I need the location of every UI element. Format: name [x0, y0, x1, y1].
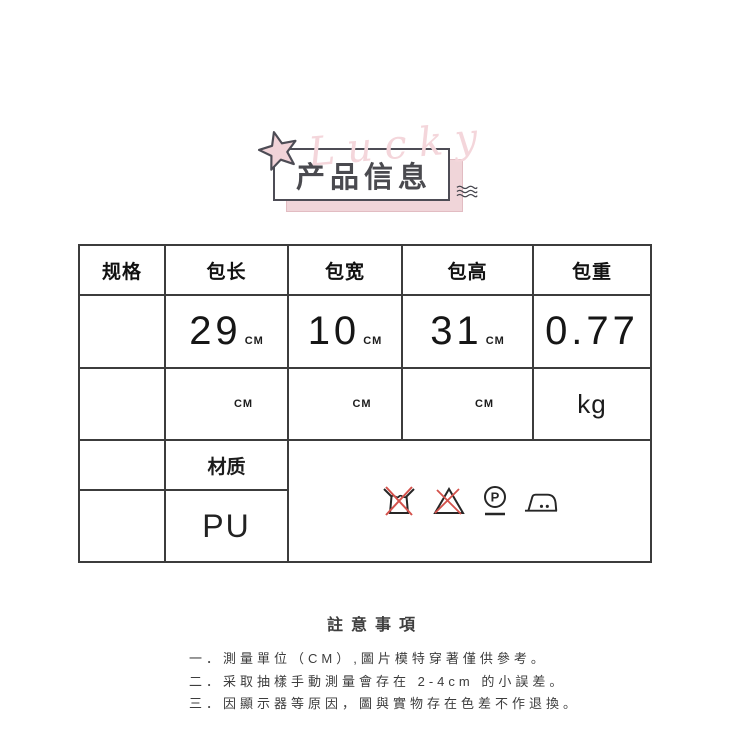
header-weight: 包重 — [533, 245, 651, 295]
width-unit-cell: CM — [288, 368, 402, 440]
note-line-1: 一．測量單位（CM）,圖片模特穿著僅供參考。 — [189, 648, 580, 671]
do-not-wash-icon — [381, 484, 417, 518]
width-value-cell: 10CM — [288, 295, 402, 368]
length-value-cell: 29CM — [165, 295, 288, 368]
material-label: 材质 — [165, 440, 288, 490]
weight-unit-cell: kg — [533, 368, 651, 440]
care-symbols-cell: P — [288, 440, 651, 562]
length-unit-cell: CM — [165, 368, 288, 440]
length-unit-inline: CM — [245, 335, 264, 347]
table-header-row: 规格 包长 包宽 包高 包重 — [79, 245, 651, 295]
spec-empty-cell — [79, 295, 165, 368]
note-line-2: 二．采取抽樣手動測量會存在 2-4cm 的小誤差。 — [189, 671, 580, 694]
spec-table: 规格 包长 包宽 包高 包重 29CM 10CM 31CM 0.77 — [78, 244, 652, 563]
dry-clean-p-icon: P — [481, 485, 509, 517]
care-icon-row: P — [289, 484, 650, 518]
material-label-row: 材质 P — [79, 440, 651, 490]
weight-value: 0.77 — [545, 309, 639, 353]
height-value-cell: 31CM — [402, 295, 533, 368]
iron-medium-icon — [524, 488, 558, 514]
header-width: 包宽 — [288, 245, 402, 295]
material-value: PU — [165, 490, 288, 562]
note-line-3: 三．因顯示器等原因，圖與實物存在色差不作退換。 — [189, 693, 580, 716]
table-units-row: CM CM CM kg — [79, 368, 651, 440]
wavy-lines-icon — [456, 185, 478, 198]
do-not-bleach-icon — [432, 485, 466, 517]
notes-title: 註意事項 — [0, 611, 750, 635]
product-info-sheet: 产品信息 Lucky 规格 包长 包宽 包高 包重 29CM — [0, 0, 750, 750]
header-height: 包高 — [402, 245, 533, 295]
header-spec: 规格 — [79, 245, 165, 295]
width-unit-inline: CM — [363, 335, 382, 347]
length-value: 29 — [189, 309, 242, 353]
page-title: 产品信息 — [291, 154, 432, 196]
width-value: 10 — [308, 309, 361, 353]
spec-empty-cell — [79, 368, 165, 440]
notes-list: 一．測量單位（CM）,圖片模特穿著僅供參考。 二．采取抽樣手動測量會存在 2-4… — [189, 648, 580, 716]
header-length: 包长 — [165, 245, 288, 295]
height-unit-inline: CM — [486, 335, 505, 347]
table-values-row: 29CM 10CM 31CM 0.77 — [79, 295, 651, 368]
spec-empty-cell — [79, 440, 165, 490]
height-unit-cell: CM — [402, 368, 533, 440]
dry-clean-letter: P — [491, 490, 500, 505]
spec-empty-cell — [79, 490, 165, 562]
weight-value-cell: 0.77 — [533, 295, 651, 368]
height-value: 31 — [430, 309, 483, 353]
